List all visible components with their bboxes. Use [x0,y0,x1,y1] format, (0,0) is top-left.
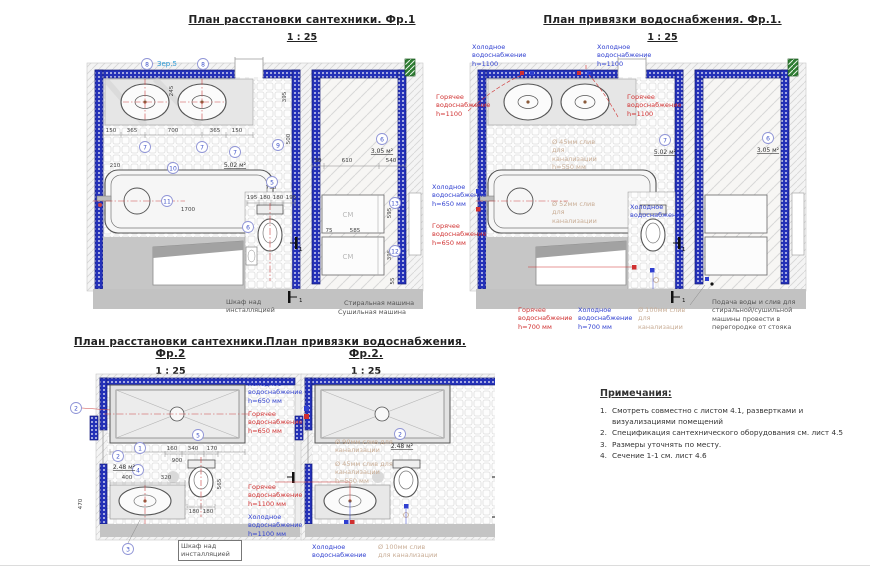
dim3-170: 170 [207,446,218,452]
cold-1100-label-p4: Холодное водоснабжение h=1100 мм [248,513,308,538]
notes-title: Примечания: [600,388,862,399]
cabinet-label-p1: Шкаф над инсталляцией [226,298,286,315]
note-item-1: 1.Смотреть совместно с листом 4.1, разве… [600,406,862,427]
drain-52-label: Ø 52мм слив для канализации [552,200,608,225]
plan4-title: План привязки водоснабжения. Фр.2. [255,336,477,360]
tag-6b: 6 [380,137,384,144]
note-item-3: 3.Размеры уточнять по месту. [600,440,862,451]
tag-7c: 7 [233,150,237,157]
dim-500: 500 [286,133,292,144]
area-bath: 5.02 м² [224,162,247,169]
plan2-scale: 1 : 25 [535,32,790,43]
dim-150b: 150 [232,128,243,134]
dim3-160: 160 [167,446,178,452]
cold-supply-top-mid: Холодное водоснабжение h=1100 [597,43,659,68]
tag-12: 12 [391,249,399,256]
tag3-5: 5 [196,433,200,440]
cabinet-label-p3: Шкаф над инсталляцией [178,540,242,561]
tag-7b: 7 [200,145,204,152]
tag-10: 10 [169,166,177,173]
riser-shaft [405,59,415,76]
note-item-2: 2.Спецификация сантехнического оборудова… [600,428,862,439]
tag3-2a: 2 [74,406,78,413]
sheet-bottom-rule [0,565,870,566]
tag2-7: 7 [663,138,667,145]
plan3-title: План расстановки сантехники. Фр.2 [58,336,283,360]
dryer-label: Сушильная машина [338,308,418,316]
drawing-sheet: План расстановки сантехники. Фр.1 1 : 25… [0,0,870,580]
dim-150a: 150 [106,128,117,134]
tag-8a: 8 [145,62,149,69]
dim3-470: 470 [78,498,84,509]
dim3-180a: 180 [189,509,200,515]
washer-label: Стиральная машина [344,299,424,307]
svg-text:1: 1 [299,298,303,304]
tag-8b: 8 [201,62,205,69]
area3: 2.48 м² [113,464,136,471]
dim-700: 700 [168,128,179,134]
dim3-900: 900 [172,458,183,464]
drain-45-label-p4: Ø 45мм слив для канализации h=550 мм [335,460,395,485]
dim-180a: 180 [260,195,271,201]
dim-1700: 1700 [181,207,196,213]
tag3-4: 4 [136,468,140,475]
mirror-label: Зер.5 [157,60,177,69]
dim-55: 55 [390,277,396,285]
tag-13: 13 [391,201,399,208]
area-laundry: 3.05 м² [371,148,394,155]
dim-395: 395 [282,91,288,102]
dim-75: 75 [325,228,333,234]
dim-595: 595 [387,207,393,218]
dim-195a: 195 [247,195,258,201]
drain-100-label: Ø 100мм слив для канализации [638,306,696,331]
hot-650-label-p4: Горячее водоснабжение h=650 мм [248,410,308,435]
plan4-geometry [275,374,495,540]
dim-50: 50 [314,158,322,164]
svg-text:1: 1 [682,247,686,253]
dim-245: 245 [169,85,175,96]
area2-bath: 5.02 м² [654,149,677,156]
door-opening [235,57,263,77]
dim-180b: 180 [273,195,284,201]
plan3-header: План расстановки сантехники. Фр.2 1 : 25 [58,336,283,377]
tag2-6: 6 [766,136,770,143]
dim3-180b: 180 [203,509,214,515]
cold-700-label: Холодное водоснабжение h=700 мм [578,306,636,331]
tag-7a: 7 [143,145,147,152]
sink-left2 [504,84,552,120]
hot-1100-label-p4: Горячее водоснабжение h=1100 мм [248,483,308,508]
dim3-320: 320 [161,475,172,481]
trapezoid-panel2 [536,241,626,285]
hot-supply-mid: Горячее водоснабжение h=1100 [627,93,685,118]
dim-210: 210 [110,163,121,169]
wall-recess2 [792,193,804,255]
dim3-400: 400 [122,475,133,481]
dim-610: 610 [342,158,353,164]
svg-text:1: 1 [299,247,303,253]
drain-45-label: Ø 45мм слив для канализации h=550 мм [552,138,608,172]
tag-5: 5 [270,180,274,187]
wall-recess [409,193,421,255]
plan2-header: План привязки водоснабжения. Фр.1. 1 : 2… [535,14,790,43]
cold-650-label-p4: Холодное водоснабжение h=650 мм [248,380,308,405]
dryer-cm-label: СМ [343,253,354,261]
tag-6: 6 [246,225,250,232]
toilet-niche [245,192,292,289]
tag3-2b: 2 [116,454,120,461]
cold-650-label: Холодное водоснабжение h=650 мм [432,183,492,208]
cold-bottom-label-p4: Холодное водоснабжение [312,543,374,560]
tag-11: 11 [163,199,171,206]
machine-note-label: Подача воды и слив для стиральной/сушиль… [712,298,820,332]
plan1-header: План расстановки сантехники. Фр.1 1 : 25 [178,14,426,43]
plan1-drawing: 150 365 700 365 150 245 395 500 1700 210… [85,55,437,317]
plan4-header: План привязки водоснабжения. Фр.2. 1 : 2… [255,336,477,377]
cold-supply-top-left: Холодное водоснабжение h=1100 [472,43,534,68]
dim-365b: 365 [210,128,221,134]
dim3-340: 340 [188,446,199,452]
hot-supply-left: Горячее водоснабжение h=1100 [436,93,494,118]
hot-650-label: Горячее водоснабжение h=650 мм [432,222,492,247]
dim-195b: 195 [286,195,297,201]
notes-block: Примечания: 1.Смотреть совместно с листо… [600,388,862,463]
dim3-565: 565 [217,478,223,489]
plan1-title: План расстановки сантехники. Фр.1 [178,14,426,26]
notes-list: 1.Смотреть совместно с листом 4.1, разве… [600,406,862,462]
cold-wc-label: Холодное водоснабжение [630,203,692,220]
washer-cm-label: СМ [343,211,354,219]
drain-90-label-p4: Ø 90мм слив для канализации [335,438,395,455]
area2-laundry: 3.05 м² [757,147,780,154]
plan1-scale: 1 : 25 [178,32,426,43]
tag3-3: 3 [126,547,130,554]
dim-540: 540 [386,158,397,164]
note-item-4: 4.Сечение 1-1 см. лист 4.6 [600,451,862,462]
riser-shaft2 [788,59,798,76]
plan2-title: План привязки водоснабжения. Фр.1. [535,14,790,26]
dim-365a: 365 [127,128,138,134]
dim-585: 585 [350,228,361,234]
sink-right2 [561,84,609,120]
svg-text:1: 1 [682,298,686,304]
drain-100-label-p4: Ø 100мм слив для канализации [378,543,438,560]
tag3-1: 1 [138,446,142,453]
tag-9: 9 [276,143,280,150]
trapezoid-panel [153,241,243,285]
tag4-2: 2 [398,432,402,439]
hot-700-label: Горячее водоснабжение h=700 мм [518,306,576,331]
